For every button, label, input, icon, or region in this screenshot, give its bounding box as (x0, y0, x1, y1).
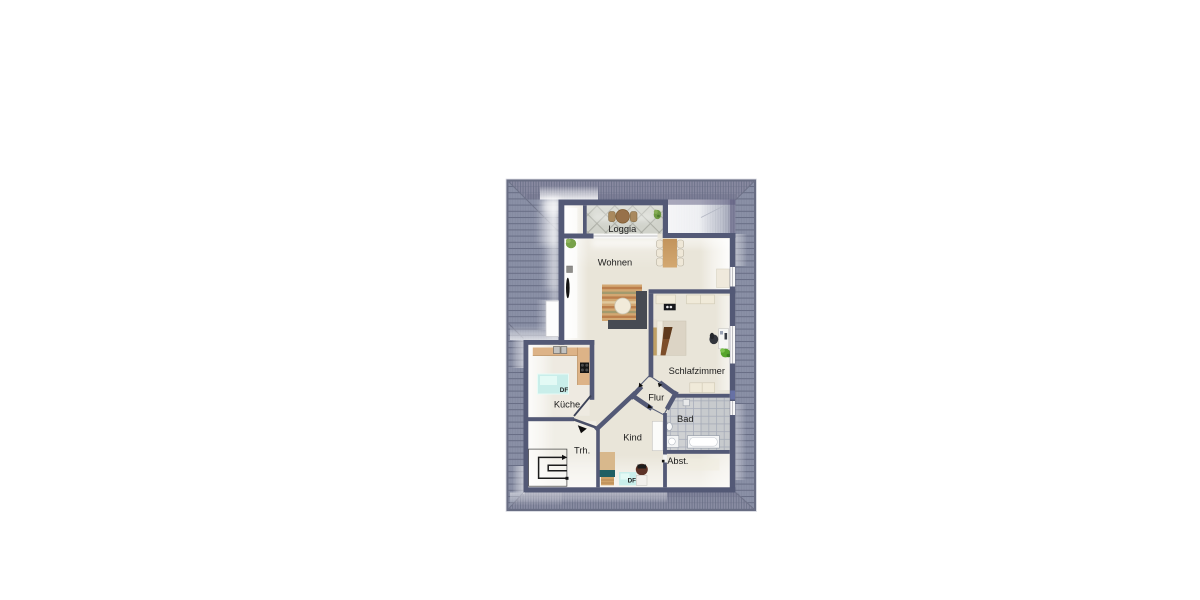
svg-text:DF: DF (628, 477, 637, 484)
svg-text:DF: DF (560, 387, 569, 394)
svg-text:Flur: Flur (648, 393, 664, 403)
svg-text:Kind: Kind (623, 433, 642, 443)
svg-text:Loggia: Loggia (608, 224, 637, 234)
svg-text:Küche: Küche (554, 399, 580, 409)
svg-text:Trh.: Trh. (574, 445, 590, 455)
svg-text:Bad: Bad (677, 414, 694, 424)
svg-text:Schlafzimmer: Schlafzimmer (669, 366, 725, 376)
svg-text:Wohnen: Wohnen (598, 257, 632, 267)
svg-text:Abst.: Abst. (667, 456, 688, 466)
